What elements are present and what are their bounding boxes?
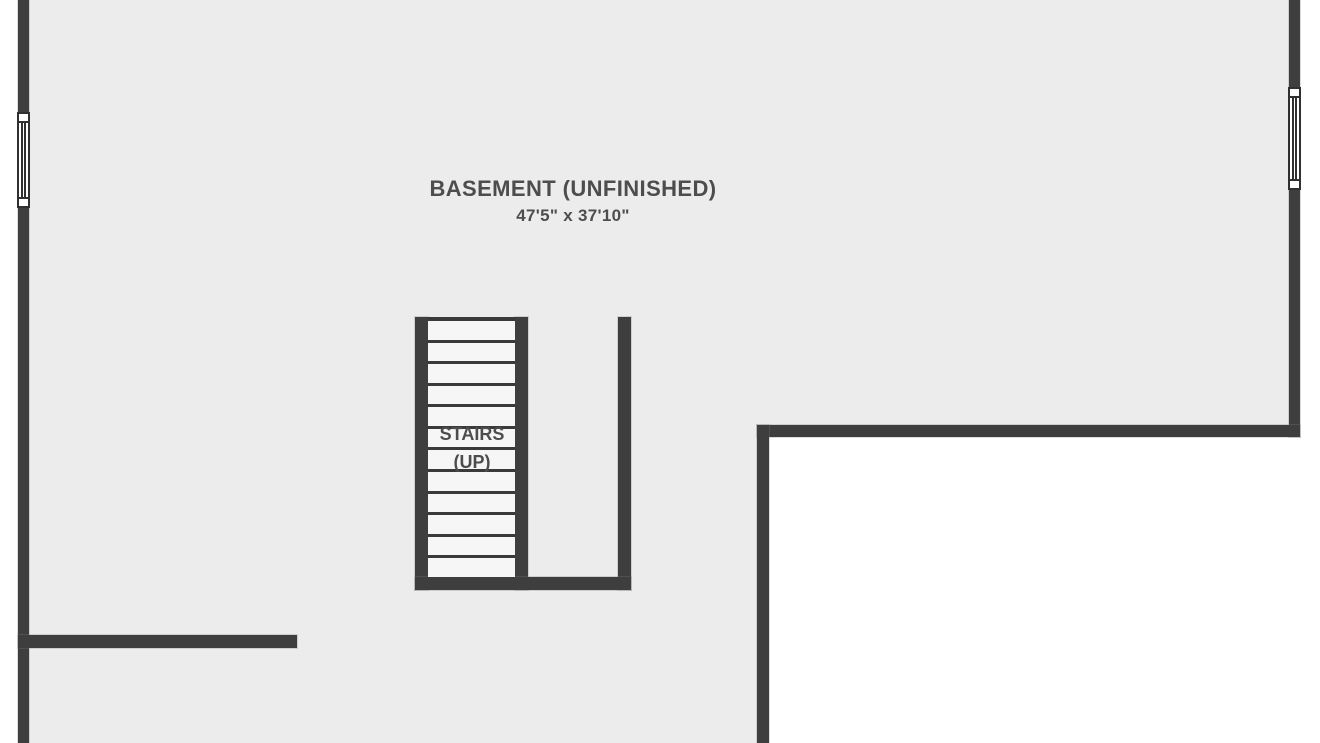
stair-wall-bottom [415,577,631,590]
stair-tread [428,343,515,365]
wall-notch-vertical [757,425,769,743]
room-label: BASEMENT (UNFINISHED) [323,177,823,201]
stair-tread [428,537,515,559]
window-glass-line [21,123,26,197]
stair-tread [428,364,515,386]
floorplan-canvas: STAIRS (UP) BASEMENT (UNFINISHED) 47'5" … [0,0,1320,743]
window-glass [19,121,28,199]
window-frame-cap [19,199,28,206]
stair-tread [428,494,515,516]
window-glass [1290,96,1299,181]
window-left-icon [17,112,30,208]
floor-area-lower-left [29,0,757,743]
room-dimensions: 47'5" x 37'10" [323,206,823,226]
stair-wall-far-right [618,317,631,590]
stair-tread [428,321,515,343]
stair-tread [428,386,515,408]
stair-tread [428,558,515,577]
window-frame-cap [1290,89,1299,96]
wall-right [1289,0,1300,437]
window-frame-cap [19,114,28,121]
wall-stub-left [18,635,297,648]
window-right-icon [1288,87,1301,190]
window-frame-cap [1290,181,1299,188]
stair-tread [428,515,515,537]
stairs-label-text: STAIRS [408,420,536,448]
stairs-label: STAIRS (UP) [408,420,536,476]
wall-notch-horizontal [757,425,1300,437]
stairs-direction-text: (UP) [408,448,536,476]
window-glass-line [1292,98,1297,179]
